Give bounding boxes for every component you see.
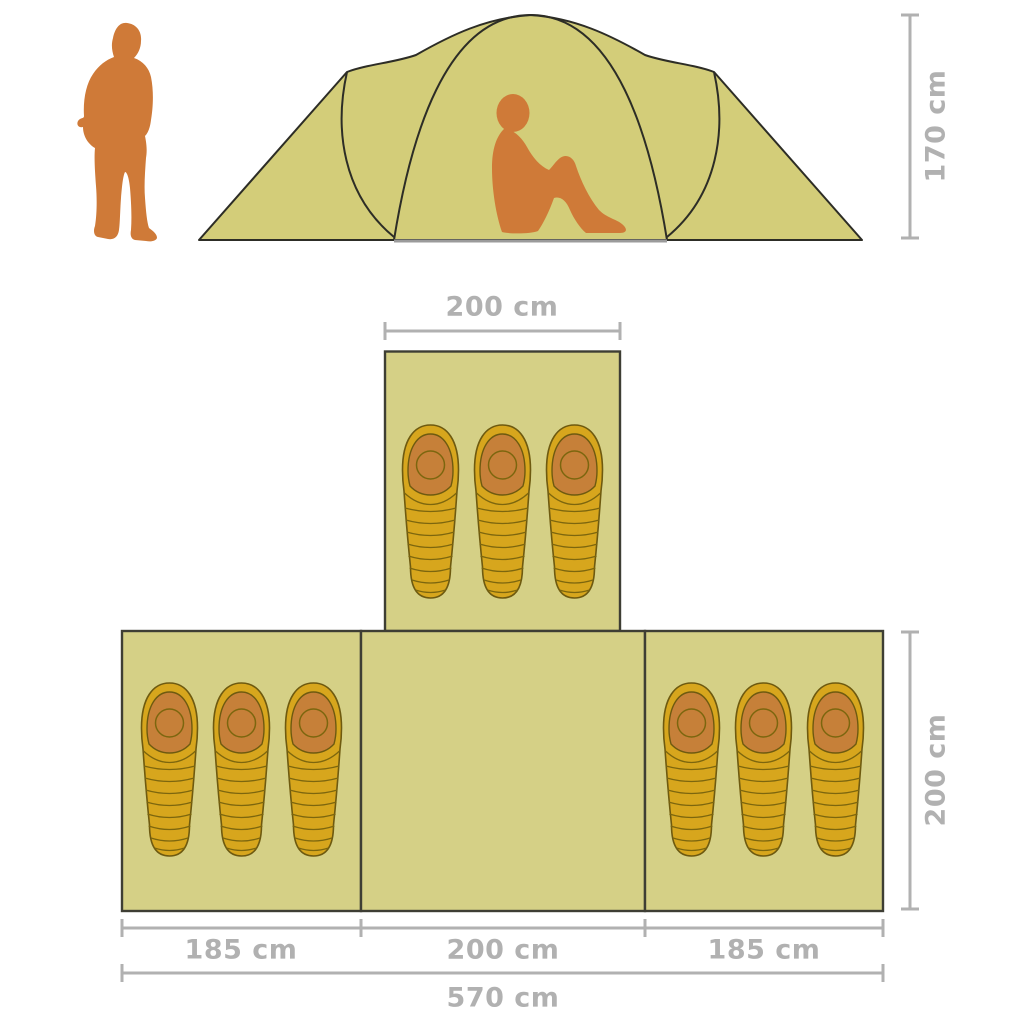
dimension-tent-height: [901, 15, 919, 238]
sleeping-bag-icon: [664, 683, 720, 856]
diagram-canvas: [0, 0, 1024, 1024]
dimension-top-room-width: [385, 322, 620, 340]
room-depth-label: 200 cm: [921, 714, 952, 827]
dimension-room-depth: [901, 632, 919, 909]
sleeping-bag-icon: [403, 425, 459, 598]
top-room-width-label: 200 cm: [446, 292, 559, 323]
right-room-width-label: 185 cm: [708, 935, 821, 966]
sleeping-bag-icon: [214, 683, 270, 856]
sleeping-bag-icon: [286, 683, 342, 856]
tent-front-view-icon: [199, 15, 862, 241]
product-dimension-diagram: 170 cm 200 cm 200 cm 185 cm 200 cm 185 c…: [0, 0, 1024, 1024]
total-width-label: 570 cm: [447, 983, 560, 1014]
center-room-width-label: 200 cm: [447, 935, 560, 966]
sleeping-bag-icon: [808, 683, 864, 856]
floor-plan: [122, 352, 883, 912]
sleeping-bag-icon: [475, 425, 531, 598]
sleeping-bag-icon: [736, 683, 792, 856]
tent-height-label: 170 cm: [921, 70, 952, 183]
room-center: [361, 631, 645, 911]
person-standing-icon: [77, 23, 157, 241]
dimension-total-width: [122, 964, 883, 982]
sleeping-bag-icon: [142, 683, 198, 856]
sleeping-bag-icon: [547, 425, 603, 598]
left-room-width-label: 185 cm: [185, 935, 298, 966]
